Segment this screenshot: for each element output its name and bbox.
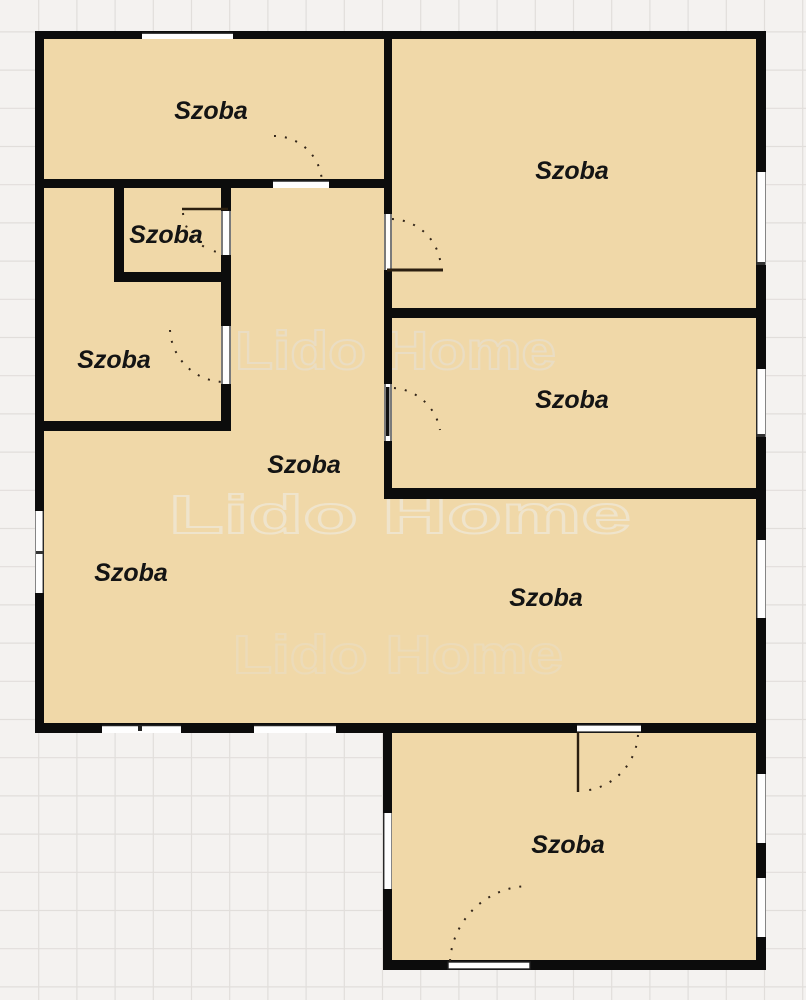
svg-text:Szoba: Szoba — [535, 386, 609, 414]
svg-text:Szoba: Szoba — [267, 451, 341, 479]
svg-text:Szoba: Szoba — [509, 584, 583, 612]
svg-text:Szoba: Szoba — [535, 157, 609, 185]
svg-text:Szoba: Szoba — [77, 346, 151, 374]
svg-text:Lido Home: Lido Home — [235, 321, 556, 381]
svg-text:Szoba: Szoba — [129, 221, 203, 249]
svg-text:Szoba: Szoba — [174, 97, 248, 125]
svg-text:Szoba: Szoba — [94, 559, 168, 587]
svg-text:Szoba: Szoba — [531, 831, 605, 859]
svg-text:Lido Home: Lido Home — [233, 625, 563, 685]
